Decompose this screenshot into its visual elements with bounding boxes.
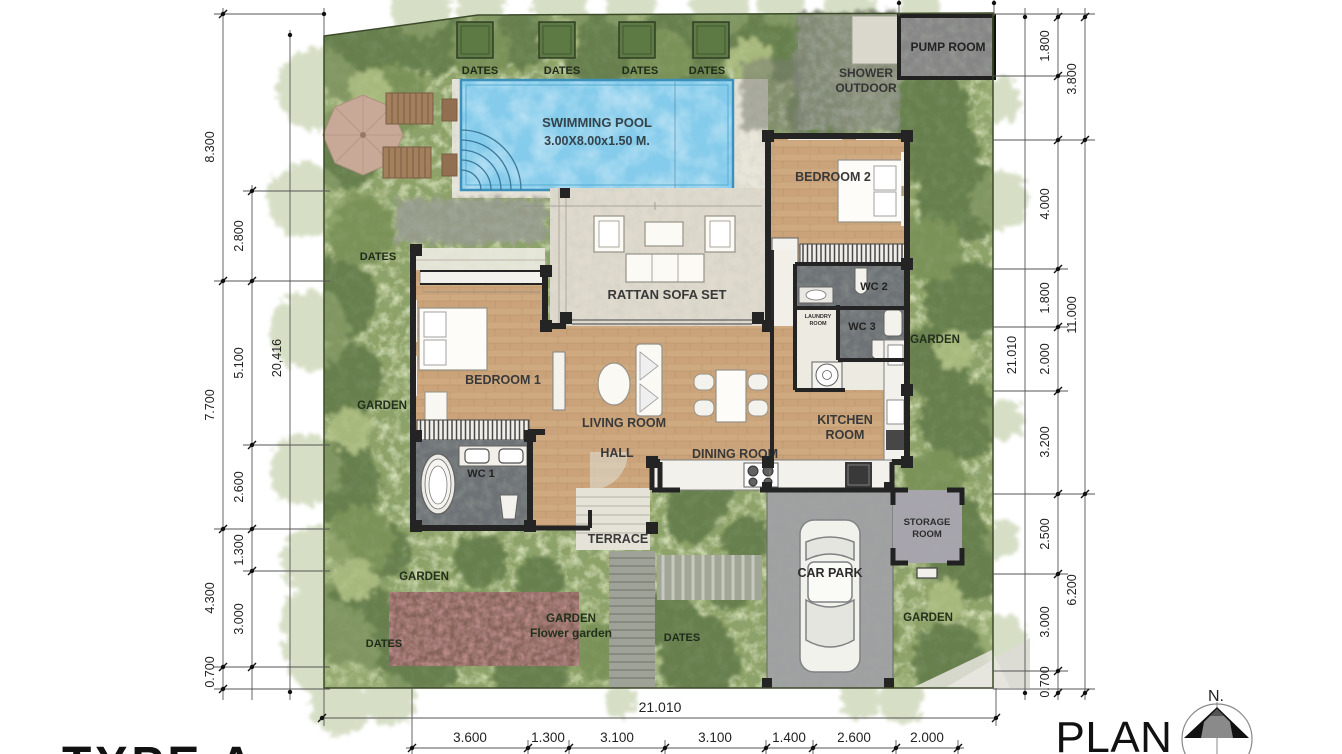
svg-text:11.000: 11.000: [1065, 296, 1079, 333]
svg-text:GARDEN: GARDEN: [910, 334, 960, 346]
svg-text:21.010: 21.010: [639, 699, 682, 715]
svg-text:3.800: 3.800: [1065, 63, 1079, 94]
svg-text:3.100: 3.100: [698, 730, 732, 745]
svg-text:8.300: 8.300: [203, 131, 217, 162]
svg-text:7.700: 7.700: [203, 389, 217, 420]
svg-text:3.200: 3.200: [1038, 426, 1052, 457]
svg-text:DATES: DATES: [664, 632, 700, 644]
svg-text:DATES: DATES: [544, 65, 580, 77]
svg-text:1.800: 1.800: [1038, 30, 1052, 61]
svg-text:2.800: 2.800: [232, 220, 246, 251]
svg-text:DATES: DATES: [622, 65, 658, 77]
svg-text:20,416: 20,416: [270, 339, 284, 377]
svg-text:2.000: 2.000: [910, 730, 944, 745]
svg-text:1.300: 1.300: [232, 534, 246, 565]
svg-text:2.000: 2.000: [1038, 343, 1052, 374]
svg-text:1.300: 1.300: [531, 730, 565, 745]
svg-text:OUTDOOR: OUTDOOR: [835, 81, 897, 95]
svg-text:6.200: 6.200: [1065, 574, 1079, 605]
svg-text:GARDEN: GARDEN: [399, 571, 449, 583]
svg-text:2.600: 2.600: [837, 730, 871, 745]
svg-text:2.600: 2.600: [232, 471, 246, 502]
svg-text:1.800: 1.800: [1038, 282, 1052, 313]
svg-text:GARDEN: GARDEN: [546, 613, 596, 625]
svg-text:0.700: 0.700: [1038, 666, 1052, 697]
svg-text:DATES: DATES: [360, 251, 396, 263]
svg-text:5.100: 5.100: [232, 347, 246, 378]
svg-text:3.100: 3.100: [600, 730, 634, 745]
svg-text:2.500: 2.500: [1038, 518, 1052, 549]
svg-text:1.400: 1.400: [772, 730, 806, 745]
svg-text:3.600: 3.600: [453, 730, 487, 745]
svg-text:DATES: DATES: [366, 638, 402, 650]
svg-text:0.700: 0.700: [203, 656, 217, 687]
svg-text:PLAN: PLAN: [1056, 713, 1173, 754]
svg-text:GARDEN: GARDEN: [903, 612, 953, 624]
svg-text:DATES: DATES: [689, 65, 725, 77]
svg-text:N.: N.: [1208, 688, 1224, 705]
svg-text:4.000: 4.000: [1038, 188, 1052, 219]
svg-text:4.300: 4.300: [203, 582, 217, 613]
svg-text:3.000: 3.000: [232, 603, 246, 634]
svg-text:21.010: 21.010: [1005, 336, 1019, 374]
svg-text:SHOWER: SHOWER: [839, 66, 893, 80]
svg-text:3.000: 3.000: [1038, 606, 1052, 637]
svg-text:Flower garden: Flower garden: [530, 626, 612, 640]
svg-text:GARDEN: GARDEN: [357, 400, 407, 412]
svg-text:TYPE A: TYPE A: [62, 738, 258, 754]
svg-text:DATES: DATES: [462, 65, 498, 77]
